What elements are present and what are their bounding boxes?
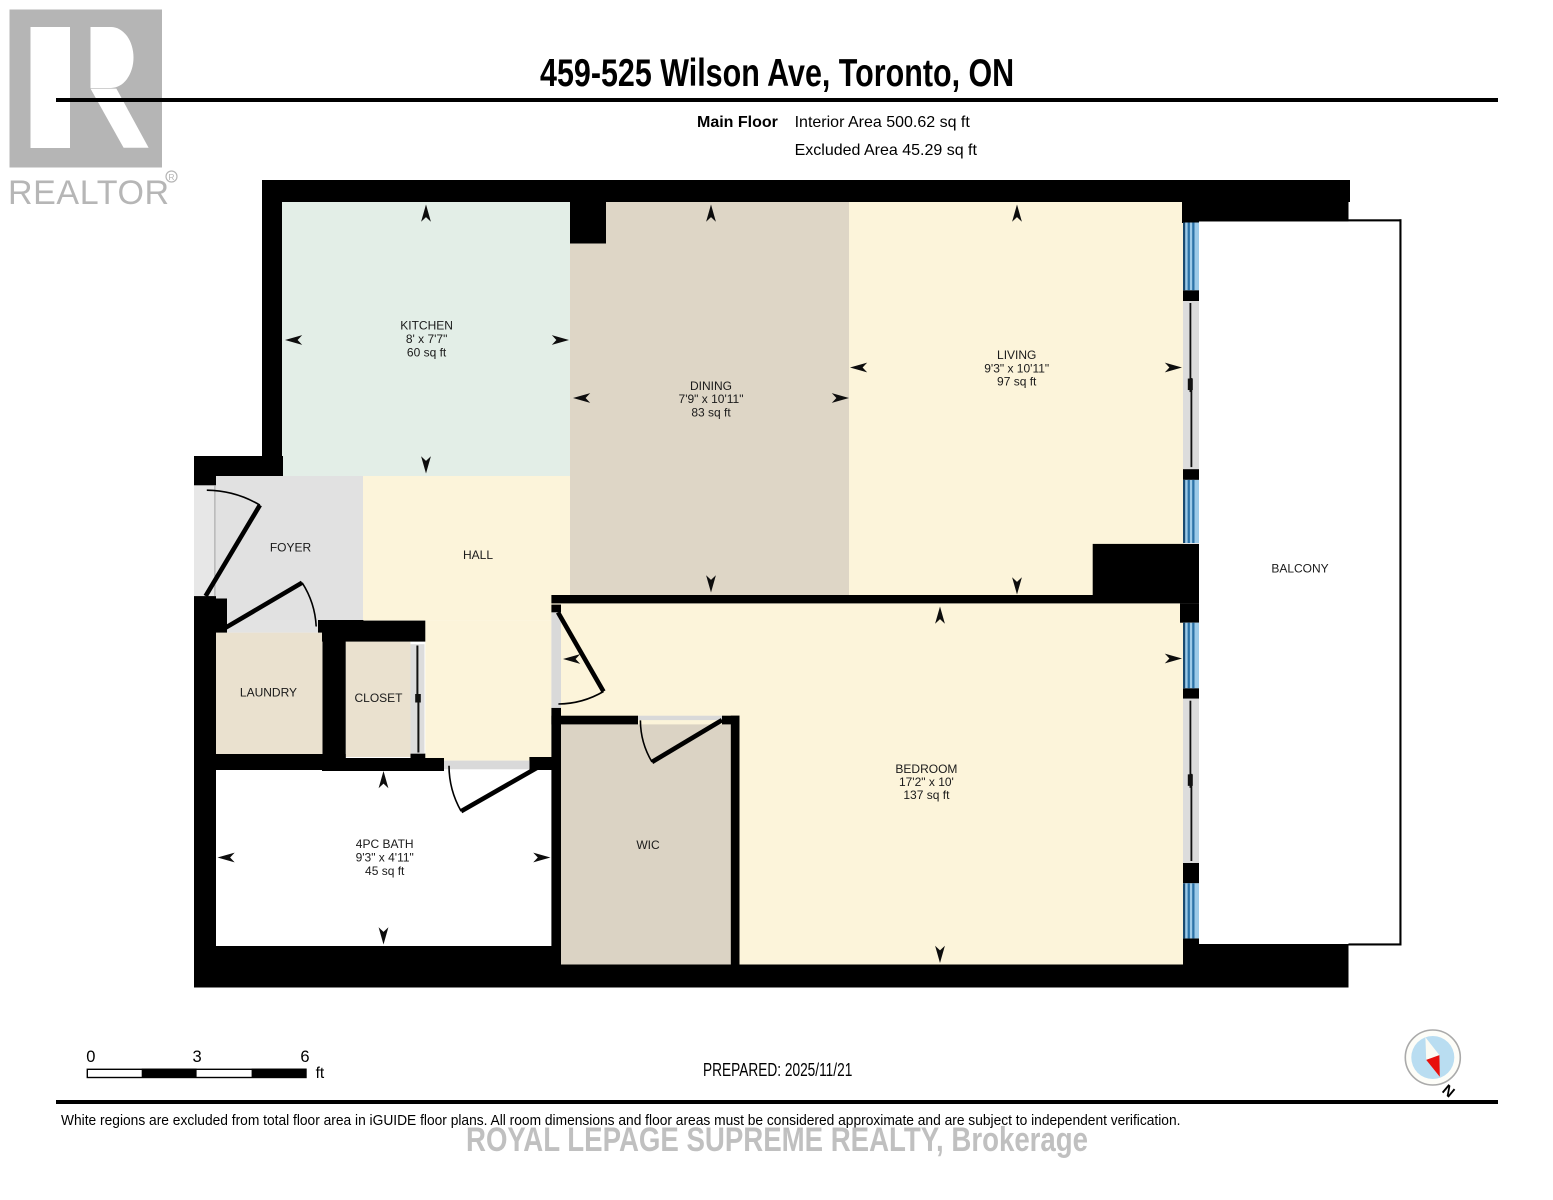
svg-text:LAUNDRY: LAUNDRY: [240, 685, 297, 699]
svg-text:7'9" x 10'11": 7'9" x 10'11": [679, 392, 744, 406]
svg-text:6: 6: [300, 1048, 309, 1066]
svg-text:FOYER: FOYER: [270, 541, 312, 555]
svg-text:8' x 7'7": 8' x 7'7": [406, 332, 448, 346]
svg-text:0: 0: [86, 1048, 95, 1066]
svg-text:HALL: HALL: [463, 548, 493, 562]
svg-text:137 sq ft: 137 sq ft: [903, 788, 950, 802]
svg-text:97 sq ft: 97 sq ft: [997, 375, 1037, 389]
svg-text:WIC: WIC: [636, 838, 660, 852]
svg-text:BALCONY: BALCONY: [1271, 562, 1328, 576]
svg-text:DINING: DINING: [690, 379, 732, 393]
svg-text:9'3" x 10'11": 9'3" x 10'11": [984, 362, 1049, 376]
svg-text:60 sq ft: 60 sq ft: [407, 345, 447, 359]
svg-text:4PC BATH: 4PC BATH: [356, 837, 414, 851]
svg-text:17'2" x 10': 17'2" x 10': [899, 775, 954, 789]
svg-text:9'3" x 4'11": 9'3" x 4'11": [356, 851, 414, 865]
svg-text:CLOSET: CLOSET: [354, 691, 403, 705]
svg-text:ft: ft: [316, 1065, 325, 1082]
svg-text:3: 3: [193, 1048, 202, 1066]
svg-text:KITCHEN: KITCHEN: [400, 318, 453, 332]
svg-text:45 sq ft: 45 sq ft: [365, 864, 405, 878]
svg-text:LIVING: LIVING: [997, 348, 1036, 362]
svg-text:83 sq ft: 83 sq ft: [691, 406, 731, 420]
svg-text:BEDROOM: BEDROOM: [895, 762, 957, 776]
